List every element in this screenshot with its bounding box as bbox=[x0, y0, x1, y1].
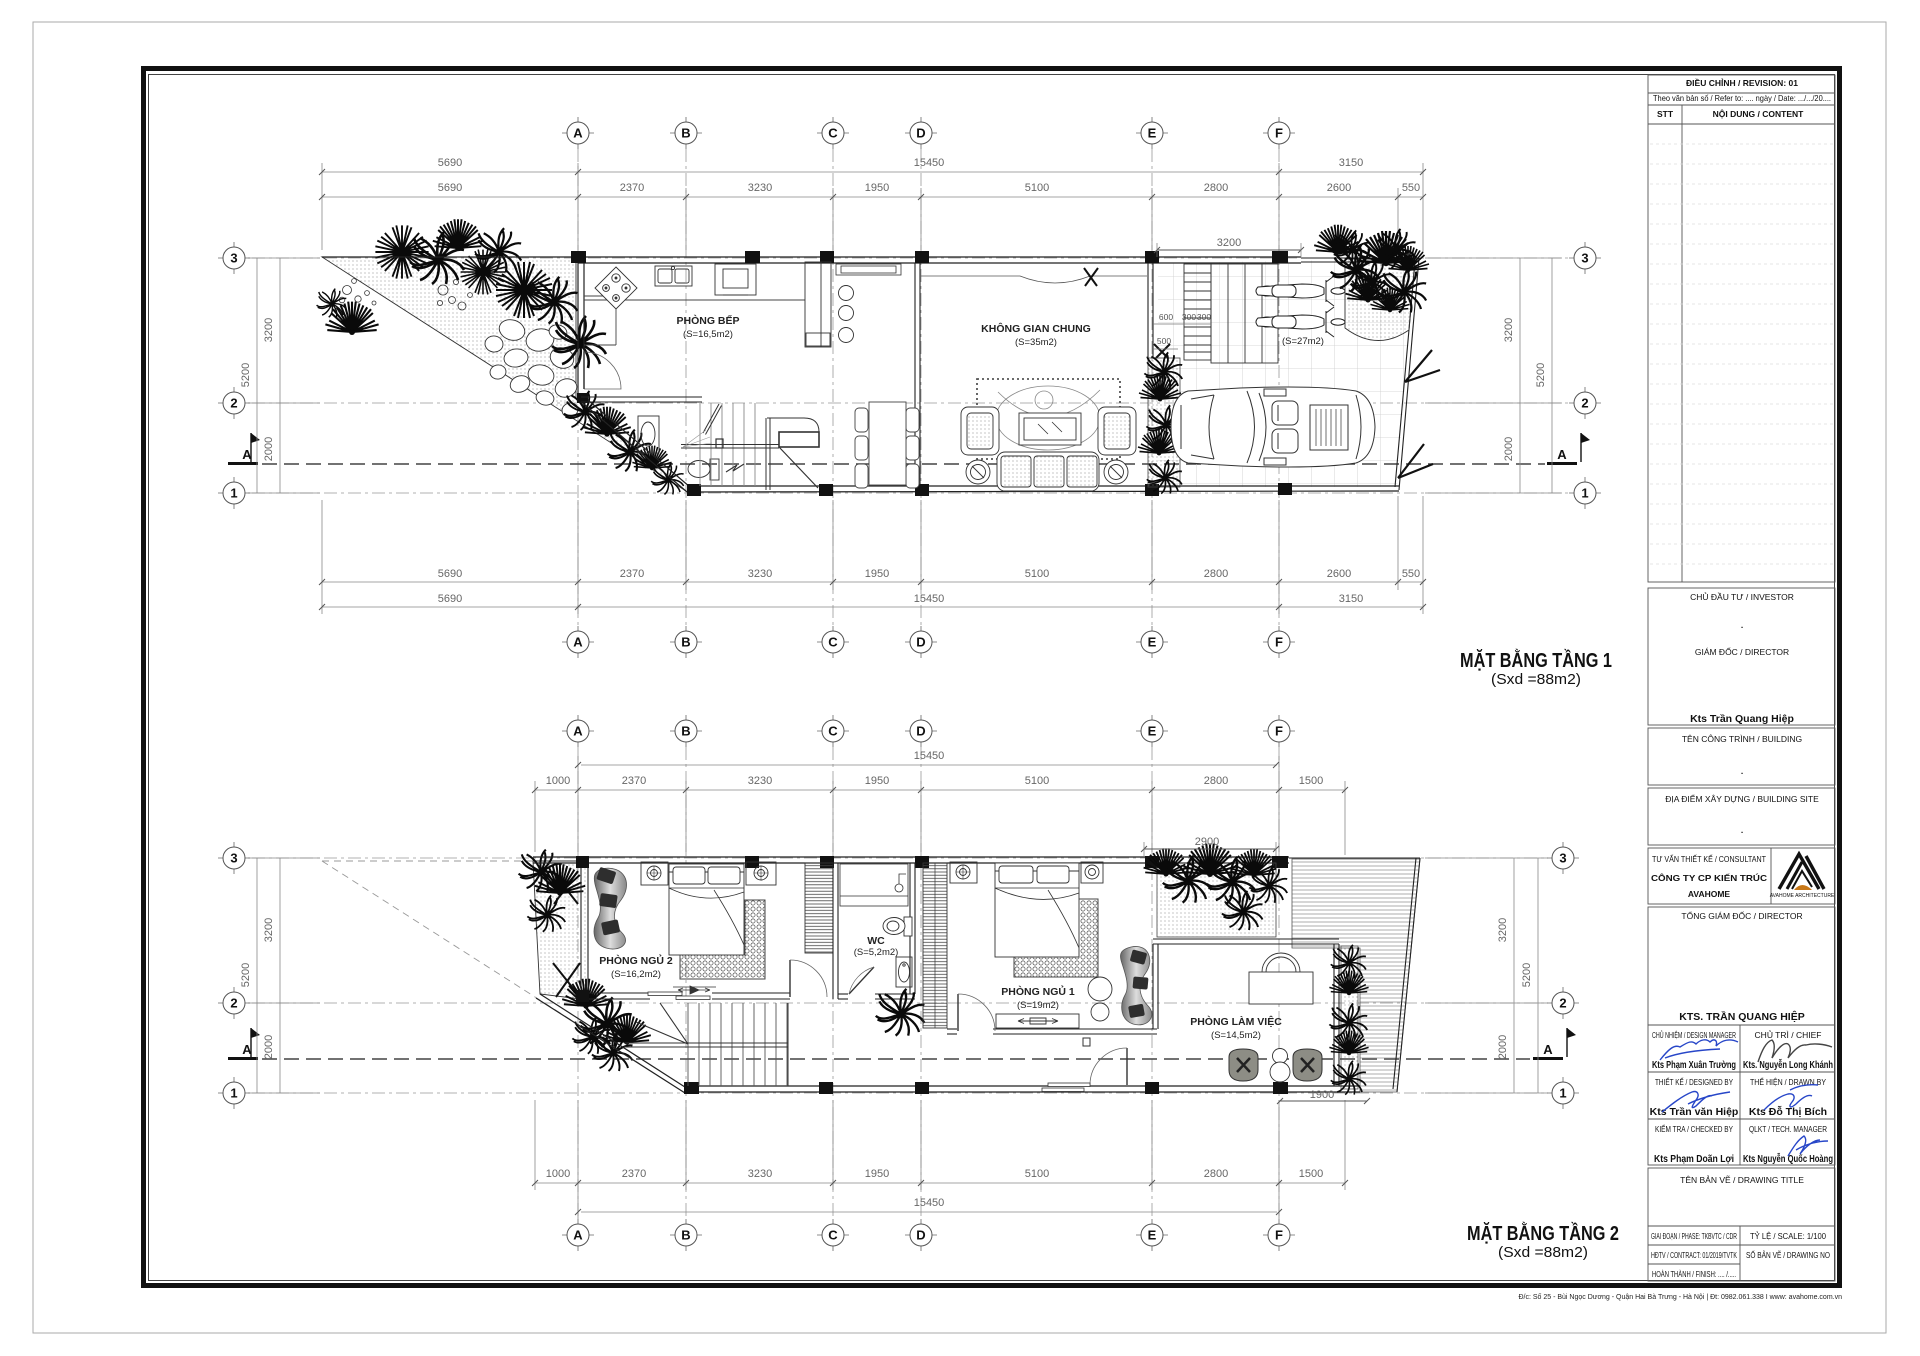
svg-text:B: B bbox=[681, 635, 690, 650]
svg-text:1: 1 bbox=[1559, 1086, 1566, 1101]
svg-text:(S=14,5m2): (S=14,5m2) bbox=[1211, 1030, 1261, 1041]
svg-text:2800: 2800 bbox=[1204, 182, 1228, 194]
svg-text:5690: 5690 bbox=[438, 593, 462, 605]
svg-text:3230: 3230 bbox=[748, 182, 772, 194]
svg-text:.: . bbox=[1741, 766, 1743, 776]
svg-text:CHỦ TRÌ / CHIEF: CHỦ TRÌ / CHIEF bbox=[1755, 1029, 1822, 1040]
svg-text:2: 2 bbox=[1559, 996, 1566, 1011]
svg-text:2900: 2900 bbox=[1195, 836, 1219, 848]
svg-text:2370: 2370 bbox=[622, 775, 646, 787]
svg-text:2000: 2000 bbox=[1503, 437, 1515, 461]
svg-text:1900: 1900 bbox=[1310, 1089, 1334, 1101]
svg-text:5200: 5200 bbox=[1535, 363, 1547, 387]
svg-text:5690: 5690 bbox=[438, 157, 462, 169]
svg-text:1000: 1000 bbox=[546, 1168, 570, 1180]
svg-text:5100: 5100 bbox=[1025, 568, 1049, 580]
svg-text:Kts Nguyễn Quốc Hoàng: Kts Nguyễn Quốc Hoàng bbox=[1743, 1152, 1833, 1165]
svg-text:2000: 2000 bbox=[263, 437, 275, 461]
svg-text:5200: 5200 bbox=[1521, 963, 1533, 987]
svg-text:3200: 3200 bbox=[1497, 918, 1509, 942]
svg-text:A: A bbox=[573, 1228, 583, 1243]
svg-text:5690: 5690 bbox=[438, 182, 462, 194]
svg-text:GIÁM ĐỐC / DIRECTOR: GIÁM ĐỐC / DIRECTOR bbox=[1695, 646, 1789, 657]
svg-text:B: B bbox=[681, 1228, 690, 1243]
svg-text:15450: 15450 bbox=[914, 750, 945, 762]
svg-text:Kts Trần Quang Hiệp: Kts Trần Quang Hiệp bbox=[1690, 713, 1794, 725]
svg-text:(S=16,2m2): (S=16,2m2) bbox=[611, 969, 661, 980]
svg-text:SỐ BẢN VẼ / DRAWING NO: SỐ BẢN VẼ / DRAWING NO bbox=[1746, 1249, 1830, 1260]
svg-text:2370: 2370 bbox=[620, 182, 644, 194]
svg-text:Kts Đỗ Thị Bích: Kts Đỗ Thị Bích bbox=[1749, 1105, 1827, 1118]
svg-text:PHÒNG LÀM VIỆC: PHÒNG LÀM VIỆC bbox=[1190, 1015, 1282, 1028]
svg-text:.: . bbox=[1741, 825, 1743, 835]
svg-text:D: D bbox=[916, 724, 925, 739]
svg-text:2600: 2600 bbox=[1327, 568, 1351, 580]
svg-text:500: 500 bbox=[1157, 336, 1171, 346]
svg-text:5100: 5100 bbox=[1025, 1168, 1049, 1180]
svg-text:15450: 15450 bbox=[914, 157, 945, 169]
svg-text:2600: 2600 bbox=[1327, 182, 1351, 194]
svg-text:F: F bbox=[1275, 724, 1283, 739]
svg-text:ĐỊA ĐIỂM XÂY DỰNG / BUILDING S: ĐỊA ĐIỂM XÂY DỰNG / BUILDING SITE bbox=[1665, 793, 1819, 804]
svg-text:1000: 1000 bbox=[546, 775, 570, 787]
svg-text:2: 2 bbox=[1581, 396, 1588, 411]
svg-text:3230: 3230 bbox=[748, 775, 772, 787]
svg-text:(S=27m2): (S=27m2) bbox=[1282, 336, 1324, 347]
svg-text:3: 3 bbox=[230, 251, 237, 266]
svg-text:2800: 2800 bbox=[1204, 775, 1228, 787]
svg-text:TỔNG GIÁM ĐỐC / DIRECTOR: TỔNG GIÁM ĐỐC / DIRECTOR bbox=[1681, 910, 1802, 921]
svg-text:AVAHOME ARCHITECTURE: AVAHOME ARCHITECTURE bbox=[1770, 893, 1835, 899]
svg-text:600: 600 bbox=[1159, 312, 1173, 322]
svg-text:KIỂM TRA / CHECKED BY: KIỂM TRA / CHECKED BY bbox=[1655, 1123, 1733, 1134]
svg-text:A: A bbox=[573, 635, 583, 650]
svg-text:A: A bbox=[573, 724, 583, 739]
svg-text:F: F bbox=[1275, 126, 1283, 141]
svg-text:3150: 3150 bbox=[1339, 157, 1363, 169]
svg-text:HOÀN THÀNH / FINISH: .... /...: HOÀN THÀNH / FINISH: .... /..... bbox=[1652, 1269, 1736, 1279]
svg-text:CHỦ NHIỆM / DESIGN MANAGER: CHỦ NHIỆM / DESIGN MANAGER bbox=[1652, 1029, 1736, 1040]
svg-text:3200: 3200 bbox=[1217, 237, 1241, 249]
svg-text:D: D bbox=[916, 1228, 925, 1243]
svg-text:5200: 5200 bbox=[240, 963, 252, 987]
svg-text:WC: WC bbox=[867, 935, 885, 947]
svg-text:3: 3 bbox=[230, 851, 237, 866]
svg-text:QLKT / TECH. MANAGER: QLKT / TECH. MANAGER bbox=[1749, 1124, 1827, 1134]
svg-text:NỘI DUNG / CONTENT: NỘI DUNG / CONTENT bbox=[1713, 108, 1804, 119]
svg-text:Kts. Nguyễn Long Khánh: Kts. Nguyễn Long Khánh bbox=[1743, 1058, 1833, 1071]
svg-text:Kts Phạm Xuân Trường: Kts Phạm Xuân Trường bbox=[1652, 1059, 1736, 1071]
svg-text:MẶT BẰNG TẦNG 1: MẶT BẰNG TẦNG 1 bbox=[1460, 648, 1612, 672]
svg-text:2370: 2370 bbox=[622, 1168, 646, 1180]
svg-text:C: C bbox=[828, 1228, 838, 1243]
svg-text:GIAI ĐOẠN / PHASE: TKBVTC / CD: GIAI ĐOẠN / PHASE: TKBVTC / CDR bbox=[1651, 1231, 1737, 1241]
svg-text:PHÒNG BẾP: PHÒNG BẾP bbox=[676, 314, 739, 327]
svg-text:1950: 1950 bbox=[865, 568, 889, 580]
svg-text:(Sxd =88m2): (Sxd =88m2) bbox=[1491, 671, 1581, 688]
svg-text:3: 3 bbox=[1581, 251, 1588, 266]
svg-text:E: E bbox=[1148, 126, 1157, 141]
svg-text:2370: 2370 bbox=[620, 568, 644, 580]
svg-text:300: 300 bbox=[1182, 312, 1196, 322]
svg-text:C: C bbox=[828, 724, 838, 739]
svg-text:(S=5,2m2): (S=5,2m2) bbox=[854, 947, 899, 958]
svg-text:CÔNG TY CP KIẾN TRÚC: CÔNG TY CP KIẾN TRÚC bbox=[1651, 872, 1767, 883]
svg-text:2000: 2000 bbox=[1497, 1035, 1509, 1059]
svg-text:A: A bbox=[1543, 1042, 1553, 1057]
svg-text:15450: 15450 bbox=[914, 1197, 945, 1209]
svg-text:C: C bbox=[828, 126, 838, 141]
svg-text:2000: 2000 bbox=[263, 1035, 275, 1059]
svg-text:5100: 5100 bbox=[1025, 775, 1049, 787]
svg-text:2: 2 bbox=[230, 996, 237, 1011]
svg-text:550: 550 bbox=[1402, 182, 1420, 194]
svg-text:B: B bbox=[681, 724, 690, 739]
svg-text:PHÒNG NGỦ 2: PHÒNG NGỦ 2 bbox=[599, 954, 673, 967]
svg-text:STT: STT bbox=[1657, 109, 1674, 119]
svg-text:E: E bbox=[1148, 1228, 1157, 1243]
svg-text:TỶ LỆ / SCALE: 1/100: TỶ LỆ / SCALE: 1/100 bbox=[1750, 1230, 1826, 1241]
svg-text:PHÒNG NGỦ 1: PHÒNG NGỦ 1 bbox=[1001, 985, 1075, 998]
svg-text:Đ/c: Số 25 - Bùi Ngọc Dương -: Đ/c: Số 25 - Bùi Ngọc Dương - Quận Hai B… bbox=[1518, 1292, 1842, 1301]
svg-text:5690: 5690 bbox=[438, 568, 462, 580]
svg-text:3230: 3230 bbox=[748, 1168, 772, 1180]
svg-text:300: 300 bbox=[1197, 312, 1211, 322]
svg-text:2800: 2800 bbox=[1204, 1168, 1228, 1180]
svg-text:A: A bbox=[573, 126, 583, 141]
svg-text:KHÔNG GIAN CHUNG: KHÔNG GIAN CHUNG bbox=[981, 322, 1091, 335]
svg-text:E: E bbox=[1148, 724, 1157, 739]
svg-text:1500: 1500 bbox=[1299, 775, 1323, 787]
svg-text:2800: 2800 bbox=[1204, 568, 1228, 580]
svg-text:Kts Phạm Doãn Lợi: Kts Phạm Doãn Lợi bbox=[1654, 1153, 1734, 1165]
svg-text:3: 3 bbox=[1559, 851, 1566, 866]
svg-text:1950: 1950 bbox=[865, 775, 889, 787]
svg-text:3200: 3200 bbox=[263, 918, 275, 942]
svg-text:Theo văn bản số / Refer to: ..: Theo văn bản số / Refer to: .... ngày / … bbox=[1653, 93, 1831, 103]
svg-text:D: D bbox=[916, 635, 925, 650]
svg-text:E: E bbox=[1148, 635, 1157, 650]
svg-text:C: C bbox=[828, 635, 838, 650]
svg-text:3230: 3230 bbox=[748, 568, 772, 580]
svg-text:F: F bbox=[1275, 1228, 1283, 1243]
svg-text:(S=35m2): (S=35m2) bbox=[1015, 337, 1057, 348]
svg-text:1950: 1950 bbox=[865, 182, 889, 194]
svg-text:TÊN BẢN VẼ / DRAWING TITLE: TÊN BẢN VẼ / DRAWING TITLE bbox=[1680, 1174, 1804, 1185]
svg-text:3150: 3150 bbox=[1339, 593, 1363, 605]
svg-text:1: 1 bbox=[230, 1086, 237, 1101]
svg-text:B: B bbox=[681, 126, 690, 141]
svg-text:(S=19m2): (S=19m2) bbox=[1017, 1000, 1059, 1011]
svg-text:(Sxd =88m2): (Sxd =88m2) bbox=[1498, 1244, 1588, 1261]
svg-text:.: . bbox=[1741, 620, 1743, 630]
svg-text:2: 2 bbox=[230, 396, 237, 411]
svg-text:THIẾT KẾ / DESIGNED BY: THIẾT KẾ / DESIGNED BY bbox=[1655, 1077, 1733, 1087]
svg-text:3200: 3200 bbox=[1503, 318, 1515, 342]
svg-text:(S=16,5m2): (S=16,5m2) bbox=[683, 329, 733, 340]
svg-text:1950: 1950 bbox=[865, 1168, 889, 1180]
svg-text:AVAHOME: AVAHOME bbox=[1688, 889, 1731, 899]
svg-text:A: A bbox=[1557, 447, 1567, 462]
svg-text:F: F bbox=[1275, 635, 1283, 650]
svg-text:15450: 15450 bbox=[914, 593, 945, 605]
svg-text:3200: 3200 bbox=[263, 318, 275, 342]
svg-text:1: 1 bbox=[1581, 486, 1588, 501]
svg-text:D: D bbox=[916, 126, 925, 141]
svg-text:CHỦ ĐẦU TƯ / INVESTOR: CHỦ ĐẦU TƯ / INVESTOR bbox=[1690, 591, 1794, 602]
svg-text:HĐTV / CONTRACT: 01/2019/TVTK: HĐTV / CONTRACT: 01/2019/TVTK bbox=[1651, 1250, 1737, 1260]
svg-text:ĐIỀU CHỈNH / REVISION: 01: ĐIỀU CHỈNH / REVISION: 01 bbox=[1686, 77, 1798, 88]
svg-text:550: 550 bbox=[1402, 568, 1420, 580]
svg-text:1500: 1500 bbox=[1299, 1168, 1323, 1180]
svg-text:TƯ VẤN THIẾT KẾ / CONSULTANT: TƯ VẤN THIẾT KẾ / CONSULTANT bbox=[1652, 854, 1766, 864]
svg-text:MẶT BẰNG TẦNG 2: MẶT BẰNG TẦNG 2 bbox=[1467, 1221, 1619, 1245]
svg-text:KTS. TRẦN QUANG HIỆP: KTS. TRẦN QUANG HIỆP bbox=[1679, 1010, 1804, 1023]
svg-text:5100: 5100 bbox=[1025, 182, 1049, 194]
svg-text:5200: 5200 bbox=[240, 363, 252, 387]
svg-text:1: 1 bbox=[230, 486, 237, 501]
svg-text:TÊN CÔNG TRÌNH / BUILDING: TÊN CÔNG TRÌNH / BUILDING bbox=[1682, 734, 1802, 744]
